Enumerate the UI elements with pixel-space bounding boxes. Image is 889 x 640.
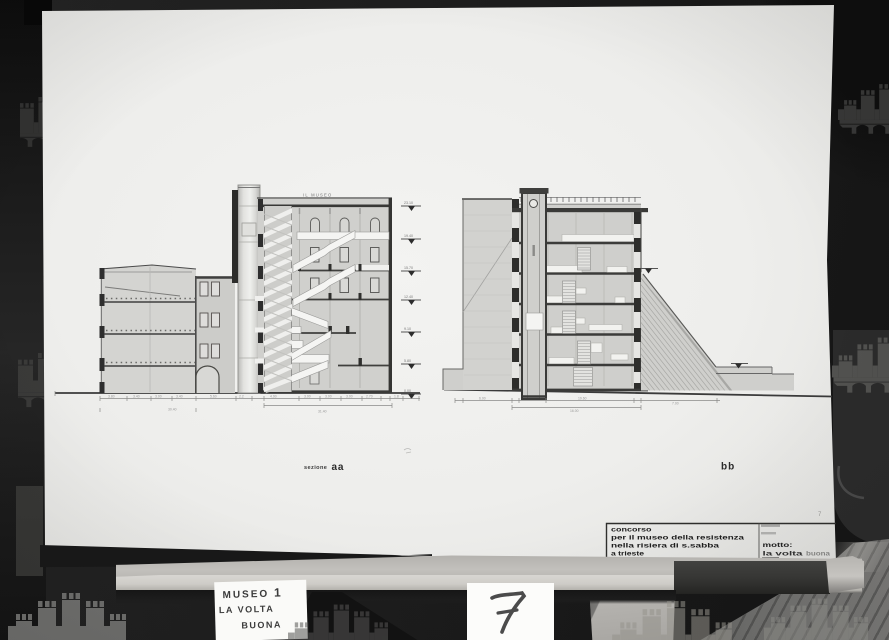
svg-text:3.00: 3.00 [304, 395, 311, 399]
svg-text:1.8: 1.8 [394, 395, 399, 399]
svg-text:nella risiera di s.sabba: nella risiera di s.sabba [611, 543, 720, 550]
svg-text:5.60: 5.60 [210, 395, 217, 399]
svg-text:3.00: 3.00 [325, 395, 332, 399]
svg-text:3.40: 3.40 [176, 395, 183, 399]
svg-text:5.80: 5.80 [404, 359, 411, 363]
svg-text:3.40: 3.40 [133, 395, 140, 399]
svg-text:6.00: 6.00 [479, 397, 486, 401]
svg-text:19.60: 19.60 [578, 397, 587, 401]
svg-text:7: 7 [818, 512, 822, 518]
svg-text:sezione: sezione [304, 465, 327, 471]
svg-text:3.80: 3.80 [108, 395, 115, 399]
svg-text:la volta: la volta [763, 551, 804, 558]
svg-text:16.00: 16.00 [570, 409, 579, 413]
svg-text:7.00: 7.00 [672, 402, 679, 406]
svg-text:9.10: 9.10 [404, 327, 411, 331]
svg-text:4.90: 4.90 [270, 395, 277, 399]
svg-text:IL MUSEO: IL MUSEO [303, 193, 332, 198]
svg-text:motto:: motto: [763, 542, 793, 549]
svg-text:a trieste: a trieste [611, 551, 645, 558]
svg-text:3.00: 3.00 [346, 395, 353, 399]
svg-text:30.40: 30.40 [168, 408, 177, 412]
svg-text:aa: aa [332, 462, 345, 473]
svg-text:concorso: concorso [611, 527, 652, 534]
svg-text:15.70: 15.70 [404, 266, 413, 270]
svg-text:0.00: 0.00 [404, 389, 411, 393]
svg-text:2.2: 2.2 [239, 395, 244, 399]
svg-text:bb: bb [721, 462, 735, 473]
svg-text:23.10: 23.10 [404, 201, 413, 205]
svg-text:31.40: 31.40 [318, 410, 327, 414]
svg-text:2.70: 2.70 [366, 395, 373, 399]
svg-text:12.40: 12.40 [404, 295, 413, 299]
svg-text:19.40: 19.40 [404, 234, 413, 238]
svg-text:per il museo della resistenza: per il museo della resistenza [611, 535, 745, 542]
svg-text:3.00: 3.00 [155, 395, 162, 399]
svg-text:buona: buona [806, 551, 831, 558]
